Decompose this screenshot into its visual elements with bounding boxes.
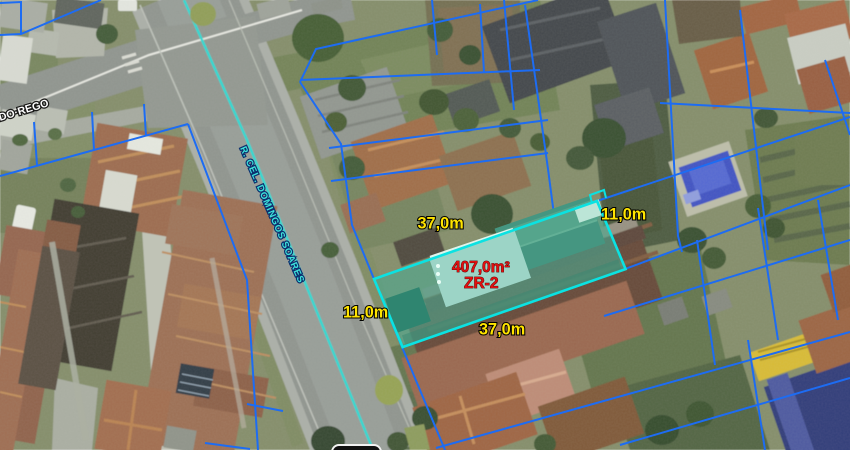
svg-text:37,0m: 37,0m xyxy=(479,321,525,339)
svg-text:11,0m: 11,0m xyxy=(343,304,388,322)
svg-text:ZR-2: ZR-2 xyxy=(464,275,498,292)
svg-text:37,0m: 37,0m xyxy=(418,215,464,233)
svg-text:407,0m²: 407,0m² xyxy=(452,259,510,276)
svg-text:11,0m: 11,0m xyxy=(601,206,646,224)
